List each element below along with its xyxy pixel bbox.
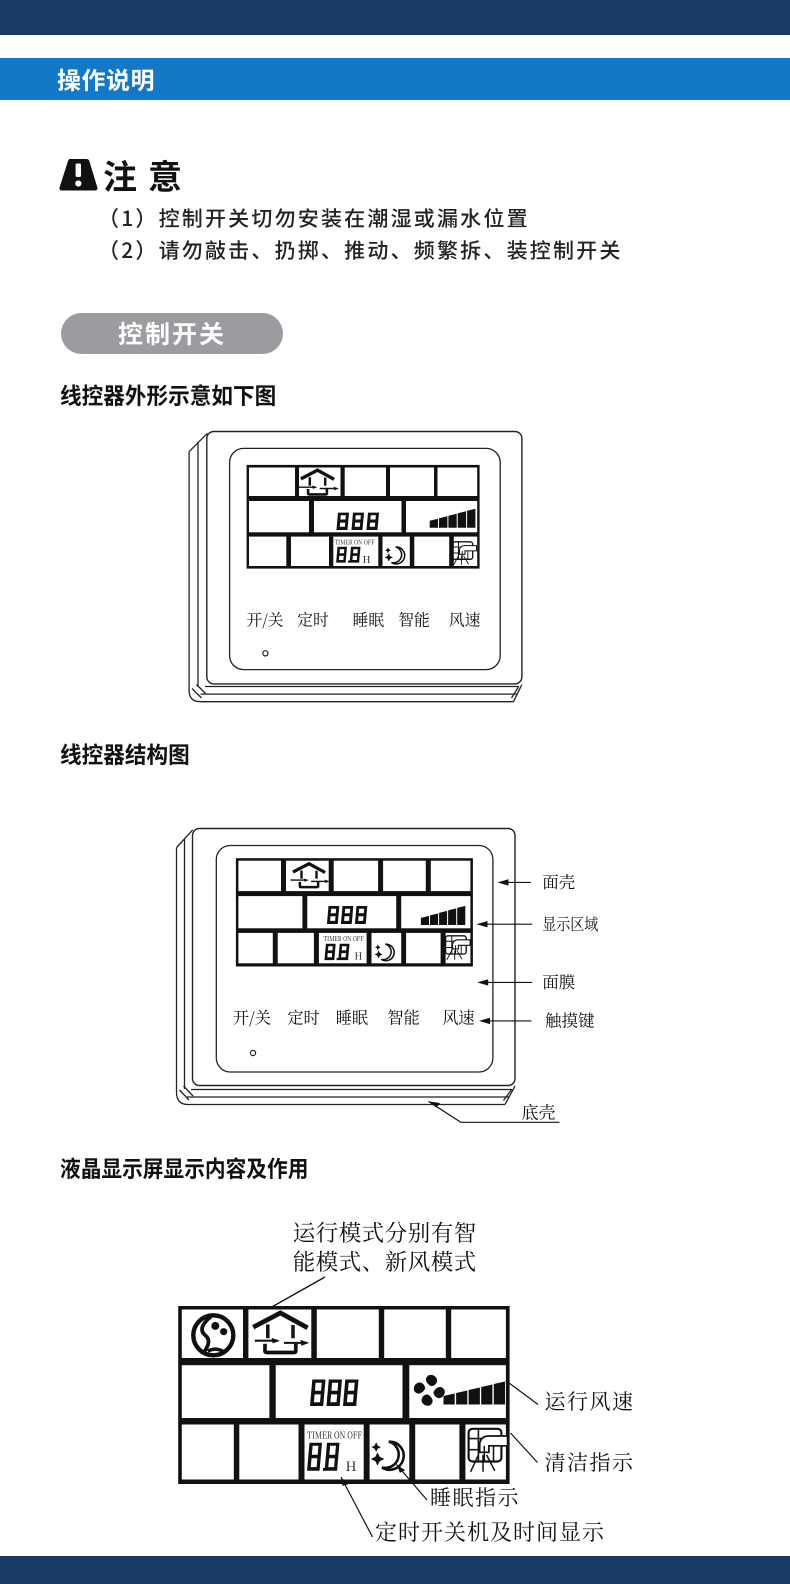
svg-text:面膜: 面膜: [542, 969, 575, 993]
svg-text:风速: 风速: [442, 1005, 474, 1029]
svg-text:面壳: 面壳: [542, 869, 575, 893]
svg-text:睡眠指示: 睡眠指示: [430, 1482, 520, 1512]
svg-text:定时: 定时: [287, 1005, 319, 1029]
svg-text:底壳: 底壳: [522, 1099, 556, 1124]
svg-text:定时: 定时: [297, 607, 329, 630]
svg-text:清洁指示: 清洁指示: [545, 1447, 635, 1477]
svg-text:运行风速: 运行风速: [545, 1386, 635, 1416]
svg-text:智能: 智能: [398, 607, 430, 630]
svg-text:触摸键: 触摸键: [545, 1008, 595, 1032]
svg-text:运行模式分别有智: 运行模式分别有智: [293, 1216, 477, 1248]
svg-text:能模式、新风模式: 能模式、新风模式: [293, 1245, 477, 1277]
svg-text:风速: 风速: [449, 607, 481, 630]
svg-text:H: H: [363, 552, 371, 566]
svg-text:定时开关机及时间显示: 定时开关机及时间显示: [375, 1516, 605, 1547]
svg-text:显示区域: 显示区域: [542, 911, 598, 935]
svg-text:TIMER ON OFF: TIMER ON OFF: [324, 933, 365, 943]
svg-text:H: H: [354, 949, 362, 963]
svg-text:睡眠: 睡眠: [353, 607, 385, 630]
svg-text:TIMER ON OFF: TIMER ON OFF: [335, 538, 375, 547]
svg-text:睡眠: 睡眠: [336, 1005, 368, 1029]
svg-text:开/关: 开/关: [233, 1005, 271, 1029]
svg-text:TIMER ON OFF: TIMER ON OFF: [307, 1428, 362, 1442]
svg-text:H: H: [346, 1456, 357, 1475]
svg-text:开/关: 开/关: [246, 607, 283, 630]
svg-text:智能: 智能: [387, 1005, 419, 1029]
